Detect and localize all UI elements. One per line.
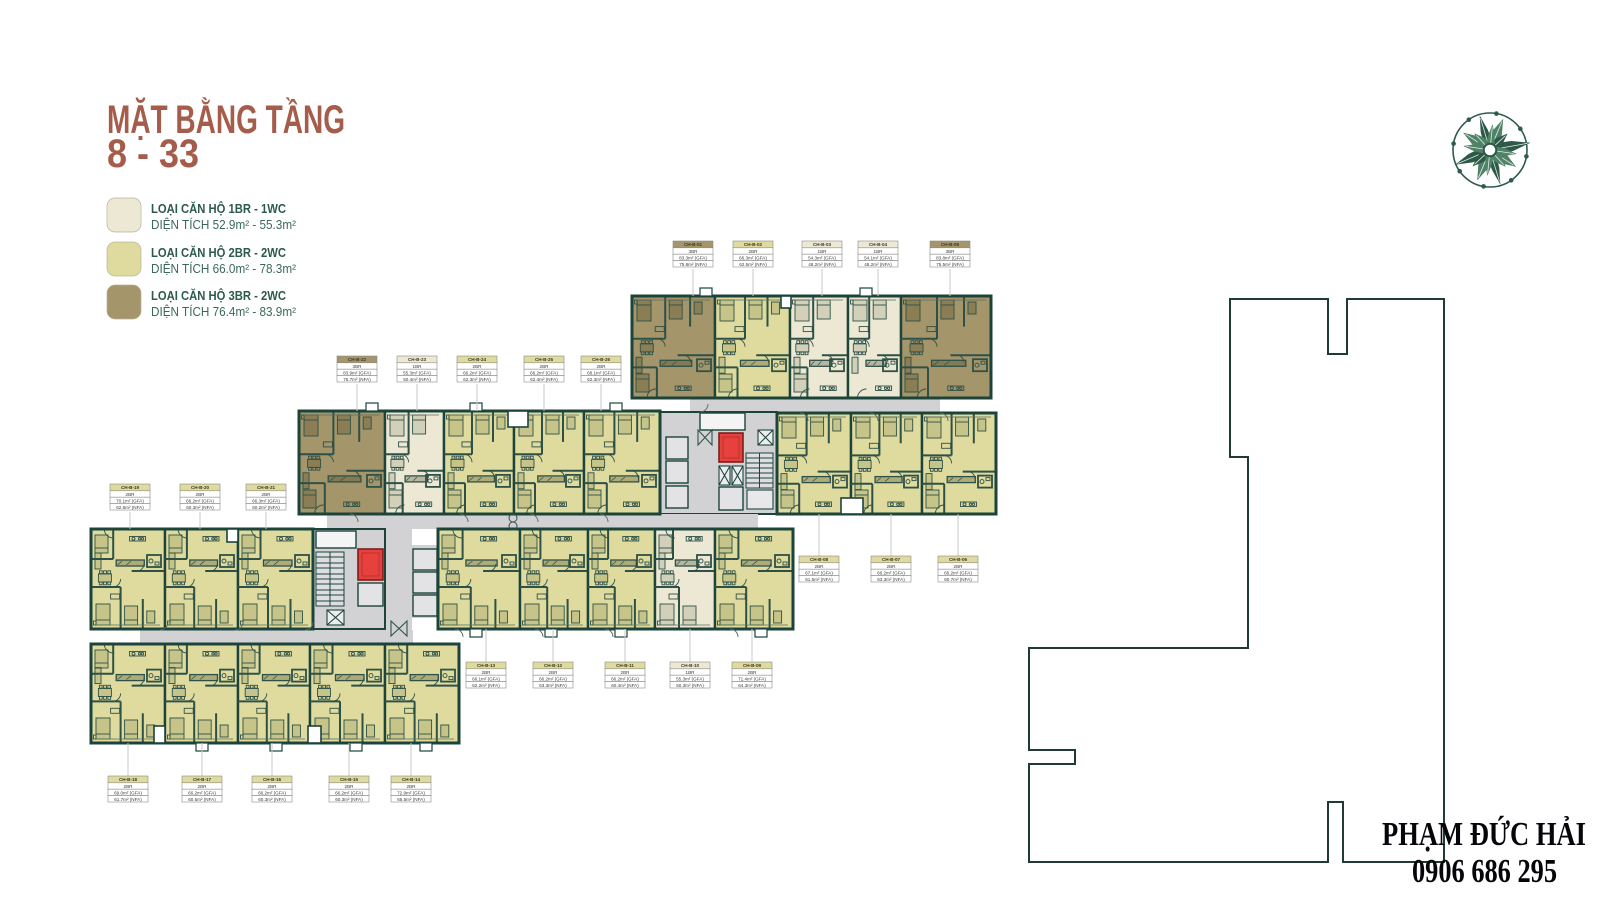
svg-text:64.3m² (NFA): 64.3m² (NFA): [738, 683, 766, 688]
svg-text:71.4m² (GFA): 71.4m² (GFA): [738, 676, 766, 681]
svg-text:66.2m² (GFA): 66.2m² (GFA): [877, 570, 905, 575]
svg-text:LOẠI CĂN HỘ 3BR - 2WC: LOẠI CĂN HỘ 3BR - 2WC: [151, 288, 286, 303]
svg-text:54.1m² (GFA): 54.1m² (GFA): [864, 255, 892, 260]
svg-text:2BR: 2BR: [749, 249, 759, 254]
svg-text:66.2m² (GFA): 66.2m² (GFA): [463, 370, 491, 375]
svg-text:CH-B-01: CH-B-01: [684, 242, 703, 247]
svg-text:CH-B-09: CH-B-09: [743, 663, 762, 668]
svg-text:1BR: 1BR: [818, 249, 828, 254]
svg-text:2BR: 2BR: [597, 364, 607, 369]
svg-text:CH-B-13: CH-B-13: [477, 663, 496, 668]
svg-text:2BR: 2BR: [540, 364, 550, 369]
svg-text:60.3m² (NFA): 60.3m² (NFA): [258, 797, 286, 802]
svg-text:66.1m² (GFA): 66.1m² (GFA): [472, 676, 500, 681]
svg-text:60.4m² (NFA): 60.4m² (NFA): [611, 683, 639, 688]
svg-text:66.2m² (GFA): 66.2m² (GFA): [944, 570, 972, 575]
svg-text:CH-B-22: CH-B-22: [348, 357, 367, 362]
svg-text:2BR: 2BR: [268, 784, 278, 789]
svg-text:CH-B-11: CH-B-11: [616, 663, 634, 668]
svg-text:CH-B-21: CH-B-21: [257, 485, 276, 490]
svg-text:60.5m² (NFA): 60.5m² (NFA): [188, 797, 216, 802]
svg-text:48.2m² (NFA): 48.2m² (NFA): [864, 262, 892, 267]
svg-text:66.2m² (GFA): 66.2m² (GFA): [188, 790, 216, 795]
svg-text:72.9m² (GFA): 72.9m² (GFA): [397, 790, 425, 795]
svg-text:2BR: 2BR: [198, 784, 208, 789]
svg-text:66.2m² (GFA): 66.2m² (GFA): [186, 498, 214, 503]
svg-text:55.3m² (GFA): 55.3m² (GFA): [676, 676, 704, 681]
svg-text:CH-B-06: CH-B-06: [949, 557, 968, 562]
svg-text:83.8m² (GFA): 83.8m² (GFA): [936, 255, 964, 260]
svg-text:69.0m² (GFA): 69.0m² (GFA): [114, 790, 142, 795]
svg-text:65.5m² (NFA): 65.5m² (NFA): [397, 797, 425, 802]
svg-text:2BR: 2BR: [407, 784, 417, 789]
svg-text:PHẠM ĐỨC HẢI: PHẠM ĐỨC HẢI: [1382, 815, 1586, 853]
svg-text:2BR: 2BR: [815, 564, 825, 569]
svg-text:1BR: 1BR: [413, 364, 423, 369]
svg-text:2BR: 2BR: [748, 670, 758, 675]
svg-text:2BR: 2BR: [124, 784, 134, 789]
svg-text:62.4m² (NFA): 62.4m² (NFA): [530, 377, 558, 382]
svg-text:63.3m² (NFA): 63.3m² (NFA): [877, 577, 905, 582]
svg-text:CH-B-23: CH-B-23: [408, 357, 427, 362]
svg-text:75.7m² (NFA): 75.7m² (NFA): [343, 377, 371, 382]
svg-text:2BR: 2BR: [621, 670, 631, 675]
svg-text:66.2m² (GFA): 66.2m² (GFA): [611, 676, 639, 681]
svg-text:LOẠI CĂN HỘ 2BR - 2WC: LOẠI CĂN HỘ 2BR - 2WC: [151, 245, 286, 260]
svg-text:CH-B-17: CH-B-17: [193, 777, 212, 782]
svg-text:CH-B-03: CH-B-03: [813, 242, 832, 247]
svg-text:66.2m² (GFA): 66.2m² (GFA): [530, 370, 558, 375]
svg-text:66.2m² (GFA): 66.2m² (GFA): [335, 790, 363, 795]
svg-text:50.3m² (NFA): 50.3m² (NFA): [676, 683, 704, 688]
svg-text:DIỆN TÍCH 52.9m² - 55.3m²: DIỆN TÍCH 52.9m² - 55.3m²: [151, 217, 297, 232]
svg-text:60.3m² (NFA): 60.3m² (NFA): [335, 797, 363, 802]
svg-text:CH-B-07: CH-B-07: [882, 557, 901, 562]
svg-text:8 - 33: 8 - 33: [107, 132, 199, 176]
svg-text:60.3m² (NFA): 60.3m² (NFA): [186, 505, 214, 510]
svg-text:60.7m² (NFA): 60.7m² (NFA): [944, 577, 972, 582]
svg-text:62.6m² (NFA): 62.6m² (NFA): [116, 505, 144, 510]
svg-text:68.1m² (GFA): 68.1m² (GFA): [587, 370, 615, 375]
svg-text:3BR: 3BR: [353, 364, 363, 369]
svg-text:CH-B-14: CH-B-14: [402, 777, 421, 782]
svg-text:75.5m² (NFA): 75.5m² (NFA): [936, 262, 964, 267]
svg-text:83.3m² (GFA): 83.3m² (GFA): [679, 255, 707, 260]
svg-text:DIỆN TÍCH 76.4m² - 83.9m²: DIỆN TÍCH 76.4m² - 83.9m²: [151, 304, 297, 319]
svg-text:0906 686 295: 0906 686 295: [1412, 853, 1557, 890]
svg-text:CH-B-05: CH-B-05: [941, 242, 960, 247]
svg-text:2BR: 2BR: [126, 492, 136, 497]
svg-text:3BR: 3BR: [946, 249, 956, 254]
svg-text:54.3m² (GFA): 54.3m² (GFA): [808, 255, 836, 260]
svg-text:CH-B-26: CH-B-26: [592, 357, 611, 362]
svg-text:2BR: 2BR: [345, 784, 355, 789]
svg-text:2BR: 2BR: [196, 492, 206, 497]
svg-text:48.2m² (NFA): 48.2m² (NFA): [808, 262, 836, 267]
svg-text:CH-B-04: CH-B-04: [869, 242, 888, 247]
svg-text:66.3m² (GFA): 66.3m² (GFA): [252, 498, 280, 503]
svg-text:2BR: 2BR: [887, 564, 897, 569]
svg-text:63.3m² (NFA): 63.3m² (NFA): [539, 683, 567, 688]
svg-text:62.2m² (NFA): 62.2m² (NFA): [472, 683, 500, 688]
svg-text:60.2m² (NFA): 60.2m² (NFA): [252, 505, 280, 510]
svg-text:CH-B-19: CH-B-19: [121, 485, 140, 490]
svg-text:1BR: 1BR: [874, 249, 884, 254]
svg-text:62.3m² (NFA): 62.3m² (NFA): [463, 377, 491, 382]
svg-text:2BR: 2BR: [482, 670, 492, 675]
svg-text:50.4m² (NFA): 50.4m² (NFA): [403, 377, 431, 382]
svg-text:55.3m² (GFA): 55.3m² (GFA): [403, 370, 431, 375]
svg-text:CH-B-20: CH-B-20: [191, 485, 210, 490]
svg-text:2BR: 2BR: [473, 364, 483, 369]
svg-text:62.3m² (NFA): 62.3m² (NFA): [587, 377, 615, 382]
svg-text:CH-B-24: CH-B-24: [468, 357, 487, 362]
svg-text:61.7m² (NFA): 61.7m² (NFA): [114, 797, 142, 802]
svg-text:CH-B-18: CH-B-18: [119, 777, 138, 782]
svg-text:70.1m² (GFA): 70.1m² (GFA): [116, 498, 144, 503]
svg-text:2BR: 2BR: [954, 564, 964, 569]
svg-text:66.2m² (GFA): 66.2m² (GFA): [539, 676, 567, 681]
svg-text:CH-B-12: CH-B-12: [544, 663, 563, 668]
svg-text:CH-B-15: CH-B-15: [340, 777, 359, 782]
svg-text:CH-B-25: CH-B-25: [535, 357, 554, 362]
svg-text:LOẠI CĂN HỘ 1BR - 1WC: LOẠI CĂN HỘ 1BR - 1WC: [151, 201, 286, 216]
svg-text:CH-B-02: CH-B-02: [744, 242, 763, 247]
svg-text:1BR: 1BR: [686, 670, 696, 675]
svg-text:75.8m² (NFA): 75.8m² (NFA): [679, 262, 707, 267]
svg-text:83.9m² (GFA): 83.9m² (GFA): [343, 370, 371, 375]
svg-text:3BR: 3BR: [689, 249, 699, 254]
svg-text:67.1m² (GFA): 67.1m² (GFA): [805, 570, 833, 575]
svg-text:DIỆN TÍCH 66.0m² - 78.3m²: DIỆN TÍCH 66.0m² - 78.3m²: [151, 261, 297, 276]
svg-text:2BR: 2BR: [549, 670, 559, 675]
svg-text:CH-B-08: CH-B-08: [810, 557, 829, 562]
svg-text:CH-B-10: CH-B-10: [681, 663, 700, 668]
svg-text:61.5m² (NFA): 61.5m² (NFA): [805, 577, 833, 582]
svg-text:2BR: 2BR: [262, 492, 272, 497]
svg-text:66.3m² (GFA): 66.3m² (GFA): [739, 255, 767, 260]
svg-text:62.5m² (NFA): 62.5m² (NFA): [739, 262, 767, 267]
svg-text:CH-B-16: CH-B-16: [263, 777, 282, 782]
svg-text:66.2m² (GFA): 66.2m² (GFA): [258, 790, 286, 795]
